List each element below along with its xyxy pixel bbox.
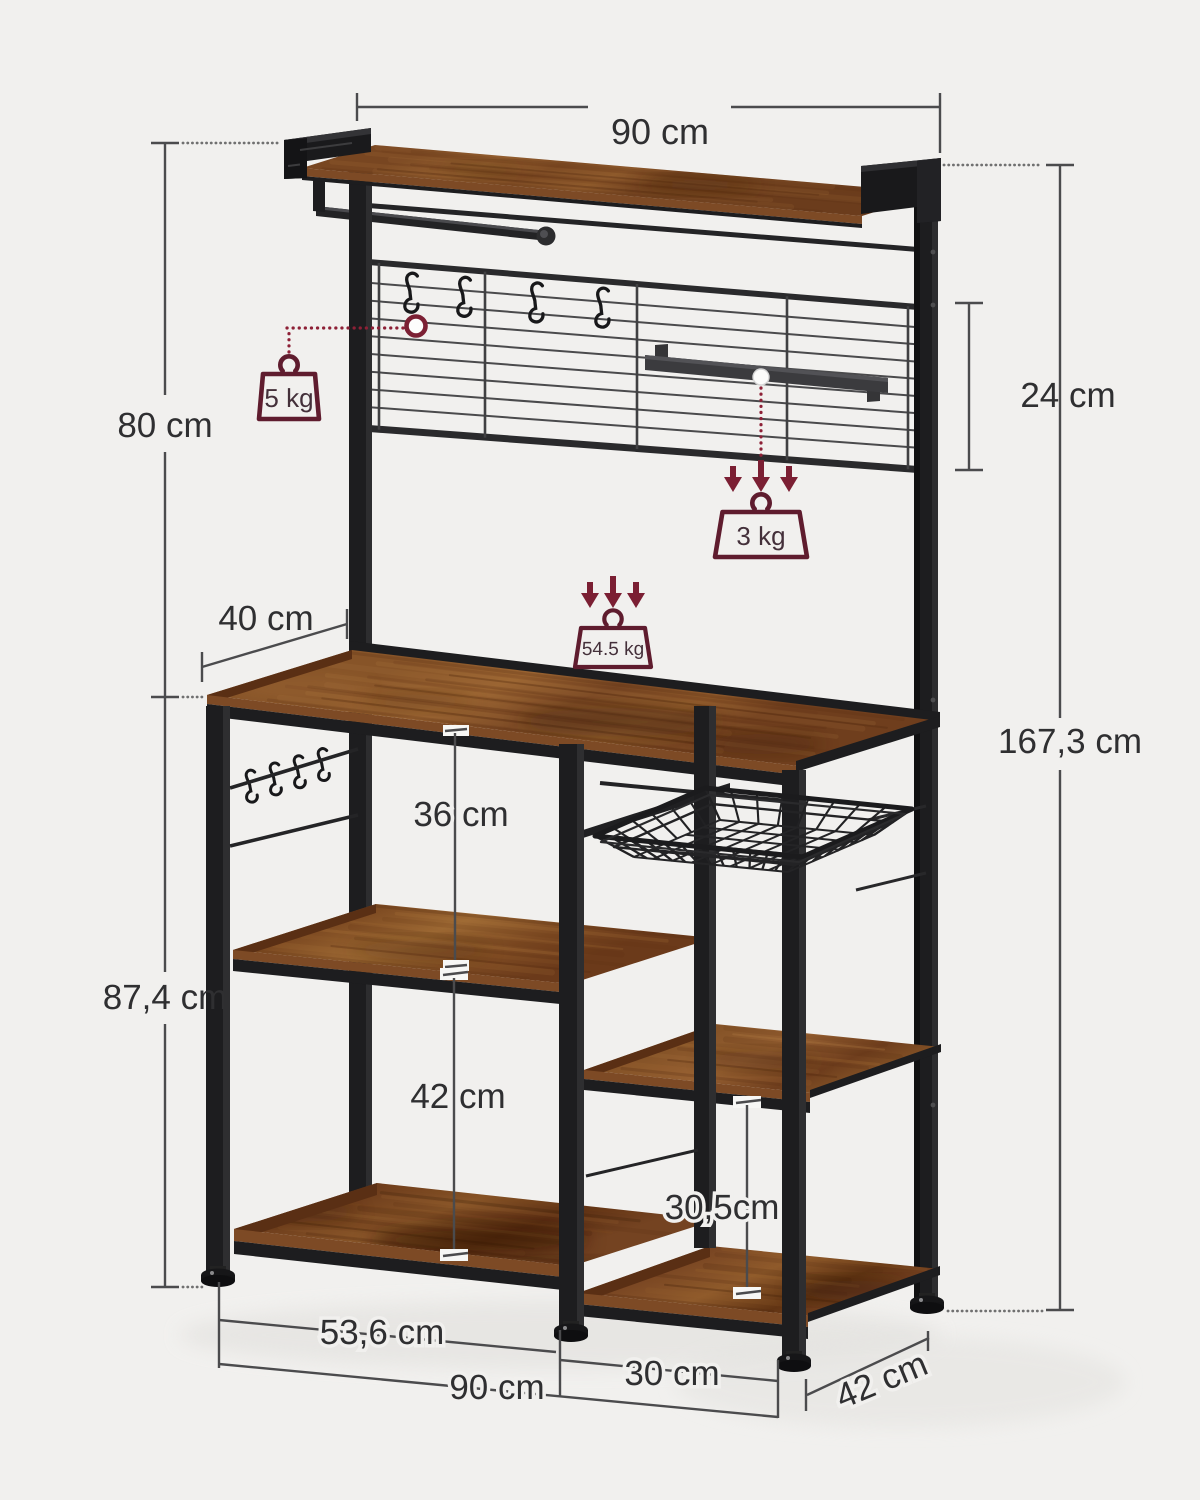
svg-text:36 cm: 36 cm bbox=[413, 795, 508, 834]
svg-text:53,6 cm: 53,6 cm bbox=[320, 1313, 445, 1352]
svg-text:3 kg: 3 kg bbox=[736, 521, 785, 551]
svg-text:167,3 cm: 167,3 cm bbox=[998, 722, 1142, 761]
svg-text:80 cm: 80 cm bbox=[117, 406, 212, 445]
svg-text:30 cm: 30 cm bbox=[624, 1354, 719, 1393]
svg-text:24 cm: 24 cm bbox=[1020, 376, 1115, 415]
svg-text:5 kg: 5 kg bbox=[264, 383, 313, 413]
svg-text:42 cm: 42 cm bbox=[410, 1077, 505, 1116]
svg-text:90 cm: 90 cm bbox=[449, 1368, 544, 1407]
svg-text:54.5 kg: 54.5 kg bbox=[582, 639, 644, 660]
svg-text:30,5cm: 30,5cm bbox=[665, 1188, 780, 1227]
svg-text:87,4 cm: 87,4 cm bbox=[103, 978, 228, 1017]
svg-text:40 cm: 40 cm bbox=[218, 599, 313, 638]
svg-text:90 cm: 90 cm bbox=[611, 111, 709, 152]
